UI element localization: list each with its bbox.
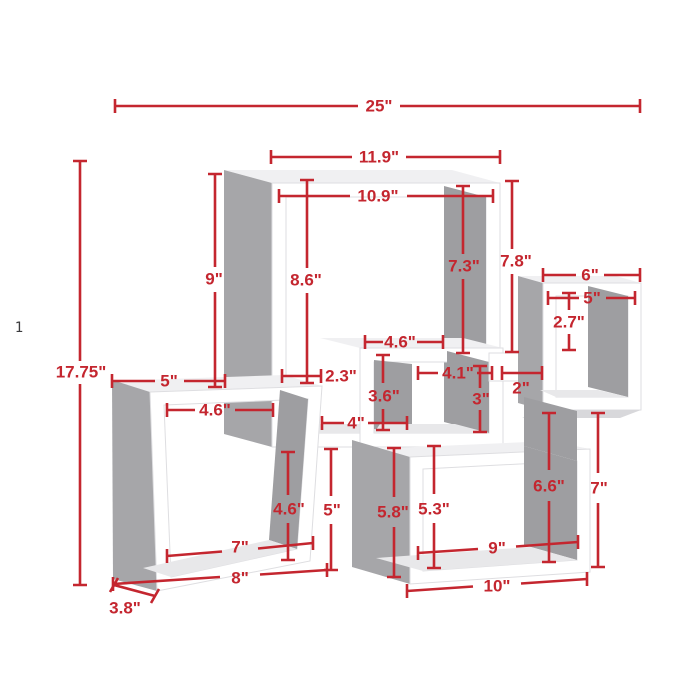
dim-label: 8": [231, 569, 249, 588]
dim-label: 8.6": [290, 271, 322, 290]
dim-label: 3.6": [368, 387, 400, 406]
stray-digit: 1: [15, 320, 23, 336]
dim-label: 2.7": [553, 313, 585, 332]
diagram-canvas: 25" 17.75" 11.9" 10.9" 9" 8.6" 7.3" 7.8"…: [0, 0, 700, 700]
dim-label: 2.3": [325, 367, 357, 386]
dim-label: 25": [366, 97, 393, 116]
dim-label: 6.6": [533, 477, 565, 496]
dim-label: 4": [347, 414, 365, 433]
dim-label: 5": [323, 501, 341, 520]
dim-label: 6": [581, 266, 599, 285]
top-cube-left-face: [224, 170, 272, 447]
shelf-dimension-diagram: 25" 17.75" 11.9" 10.9" 9" 8.6" 7.3" 7.8"…: [0, 0, 700, 700]
dim-label: 11.9": [359, 148, 399, 167]
dim-label: 7": [590, 479, 608, 498]
dim-label: 5.3": [418, 500, 450, 519]
dim-label: 5.8": [377, 503, 409, 522]
dim-label: 17.75": [56, 363, 107, 382]
dim-label: 9": [205, 270, 223, 289]
dim-label: 5": [583, 289, 601, 308]
dim-label: 4.6": [384, 333, 416, 352]
dim-label: 10.9": [357, 187, 398, 206]
dim-label: 7.3": [448, 257, 480, 276]
dim-label: 3.8": [109, 599, 141, 618]
dim-label: 9": [488, 539, 506, 558]
dim-label: 2": [512, 379, 530, 398]
dim-label: 4.6": [199, 401, 231, 420]
dim-label: 3": [472, 390, 490, 409]
dim-label: 10": [484, 577, 511, 596]
dim-label: 4.6": [273, 500, 305, 519]
dim-label: 7": [231, 538, 249, 557]
dim-label: 5": [160, 372, 178, 391]
top-cube-top-face: [224, 170, 500, 183]
dim-label: 7.8": [500, 252, 532, 271]
dim-label: 4.1": [442, 364, 474, 383]
